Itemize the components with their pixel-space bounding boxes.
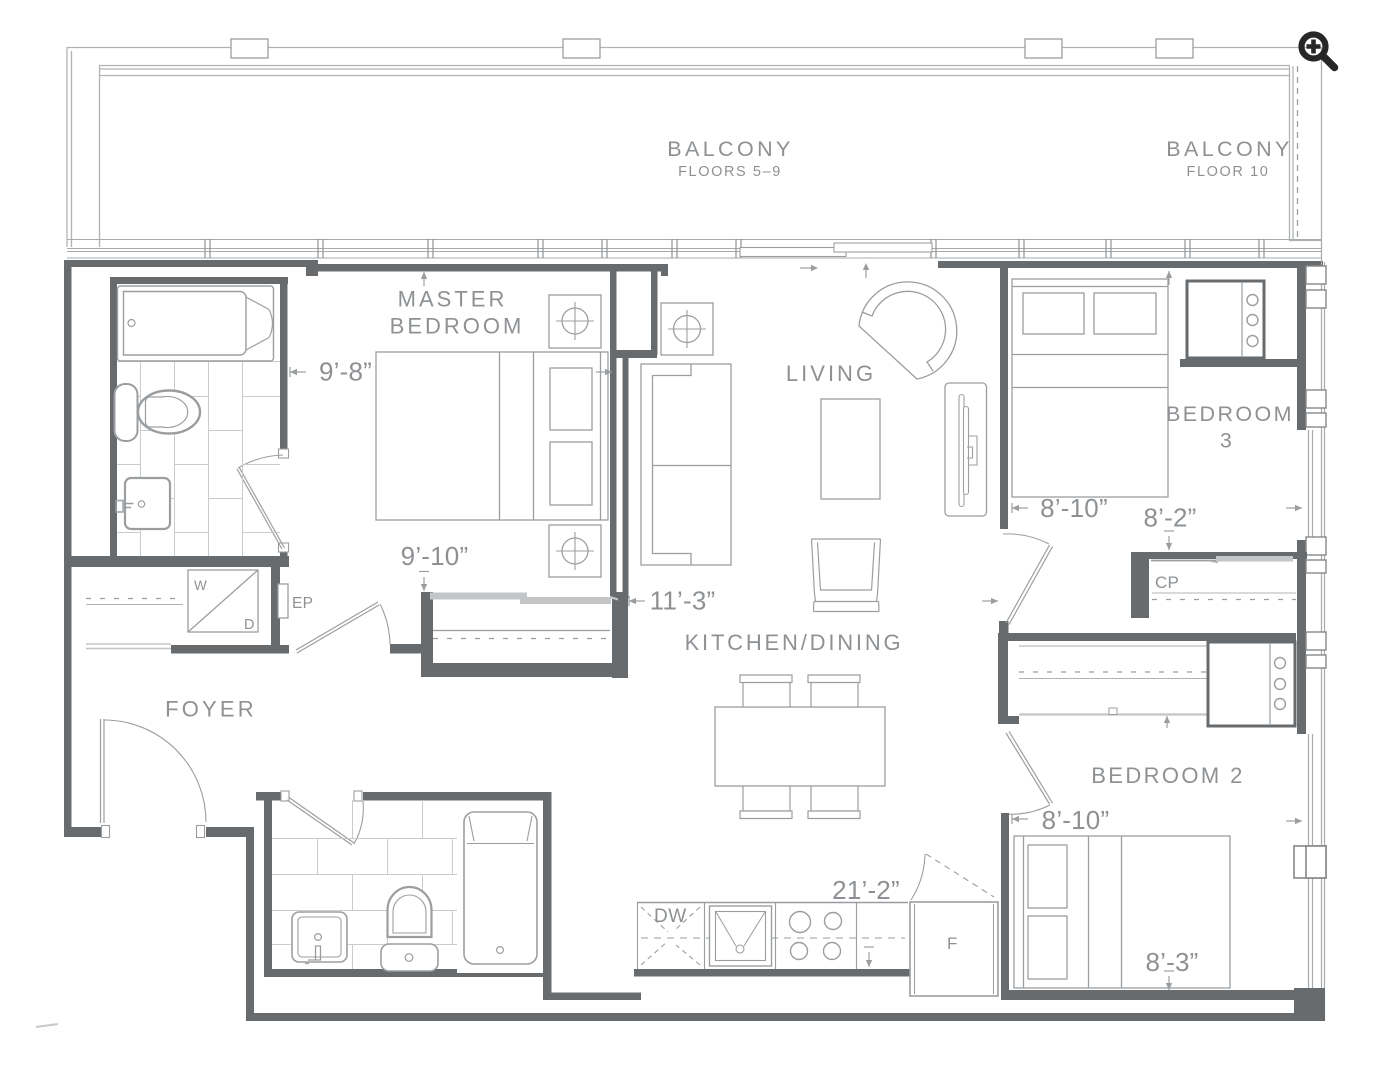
svg-text:LIVING: LIVING — [786, 361, 876, 386]
svg-text:BALCONY: BALCONY — [667, 137, 794, 161]
svg-text:F: F — [947, 934, 957, 953]
svg-text:W: W — [194, 578, 207, 593]
svg-text:9’-8”: 9’-8” — [319, 357, 372, 387]
svg-text:3: 3 — [1220, 429, 1234, 453]
svg-text:FLOOR 10: FLOOR 10 — [1187, 164, 1270, 180]
svg-text:EP: EP — [292, 595, 313, 612]
svg-text:FOYER: FOYER — [165, 697, 257, 722]
svg-text:8’-10”: 8’-10” — [1042, 805, 1110, 835]
svg-text:9’-10”: 9’-10” — [401, 541, 469, 571]
svg-text:D: D — [244, 617, 254, 633]
svg-text:BALCONY: BALCONY — [1166, 137, 1293, 161]
svg-text:8’-10”: 8’-10” — [1040, 493, 1108, 523]
svg-text:21’-2”: 21’-2” — [832, 875, 900, 905]
svg-text:BEDROOM: BEDROOM — [390, 314, 525, 339]
svg-text:8’-3”: 8’-3” — [1145, 947, 1198, 977]
svg-text:FLOORS 5–9: FLOORS 5–9 — [678, 164, 782, 180]
svg-text:BEDROOM: BEDROOM — [1166, 402, 1294, 426]
svg-text:KITCHEN/DINING: KITCHEN/DINING — [685, 630, 904, 655]
svg-text:11’-3”: 11’-3” — [650, 586, 716, 616]
svg-text:DW: DW — [654, 906, 687, 927]
svg-text:BEDROOM 2: BEDROOM 2 — [1091, 763, 1245, 788]
svg-text:CP: CP — [1155, 573, 1179, 592]
svg-text:8’-2”: 8’-2” — [1143, 503, 1196, 533]
svg-text:MASTER: MASTER — [398, 287, 508, 312]
